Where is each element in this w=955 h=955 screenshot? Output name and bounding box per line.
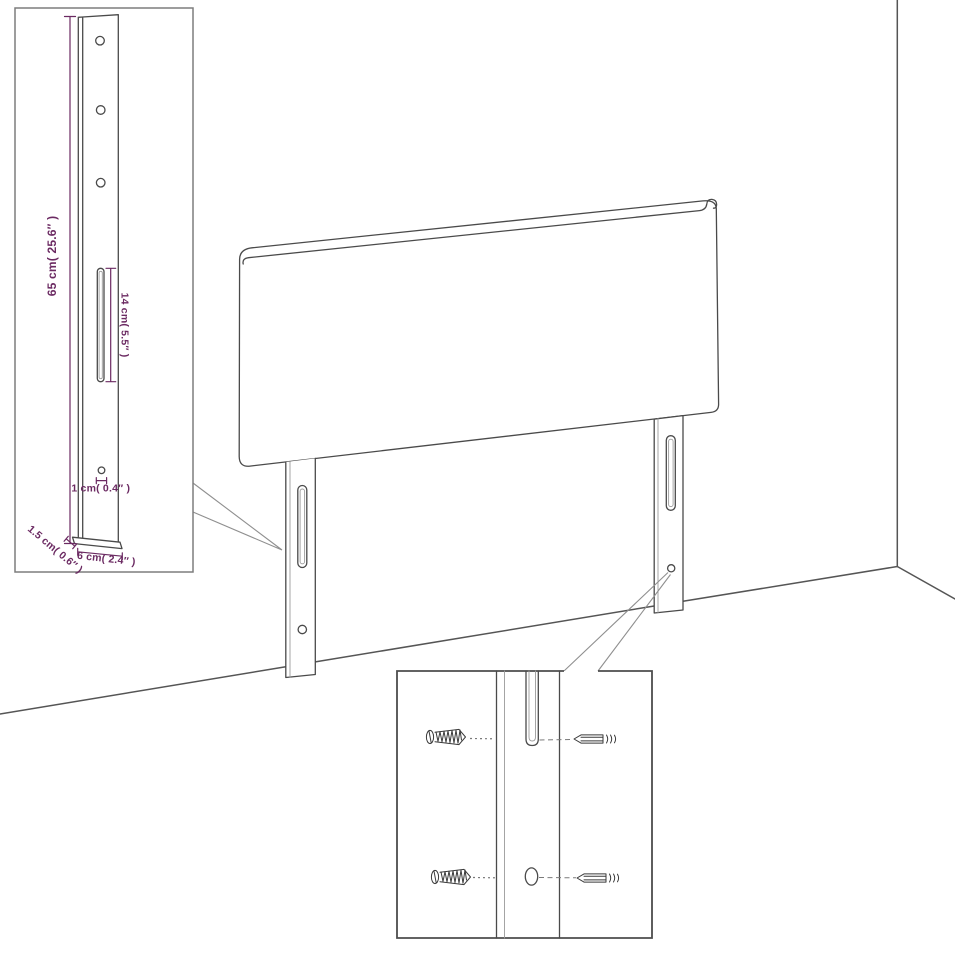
hole-diameter-label: 1 cm( 0.4″ ) [71,483,130,495]
dimension-hole-diameter: 1 cm( 0.4″ ) [71,478,130,495]
inset-leg-hole-3 [96,178,105,187]
inset-leg-slot-inner [99,271,102,378]
dimension-height: 65 cm( 25.6″ ) [45,17,76,544]
inset-leg-slot [97,268,104,381]
inset-leg-drawing [73,15,123,549]
dimension-thickness: 1.5 cm( 0.6″ ) [25,523,85,576]
inset-leg-outline [78,15,118,542]
slot-length-label: 14 cm( 5.5″ ) [119,293,131,358]
inset-leg-dimensions: 65 cm( 25.6″ ) 14 cm( 5.5″ ) 1 cm( 0.4″ … [15,8,193,576]
dimension-width: 6 cm( 2.4″ ) [76,548,136,568]
inset-leg-hole-2 [96,106,105,115]
headboard-right-leg [654,416,683,613]
headboard-panel [239,199,718,466]
thickness-label: 1.5 cm( 0.6″ ) [25,523,85,576]
inset-screw-detail [397,671,652,938]
inset-leg-small-hole [98,467,105,474]
headboard-left-leg [286,458,316,677]
headboard-dimension-diagram: 65 cm( 25.6″ ) 14 cm( 5.5″ ) 1 cm( 0.4″ … [0,0,955,955]
inset-screw-border [397,671,652,938]
diagram-canvas: 65 cm( 25.6″ ) 14 cm( 5.5″ ) 1 cm( 0.4″ … [0,0,955,955]
floor-line-right [897,567,955,600]
callout-lines-leg-inset [193,483,282,550]
inset-leg-hole-1 [96,36,105,45]
height-label: 65 cm( 25.6″ ) [45,216,59,297]
inset-leg-bottom-face [73,537,123,548]
width-label: 6 cm( 2.4″ ) [76,550,136,569]
panel-front-face [239,201,718,466]
